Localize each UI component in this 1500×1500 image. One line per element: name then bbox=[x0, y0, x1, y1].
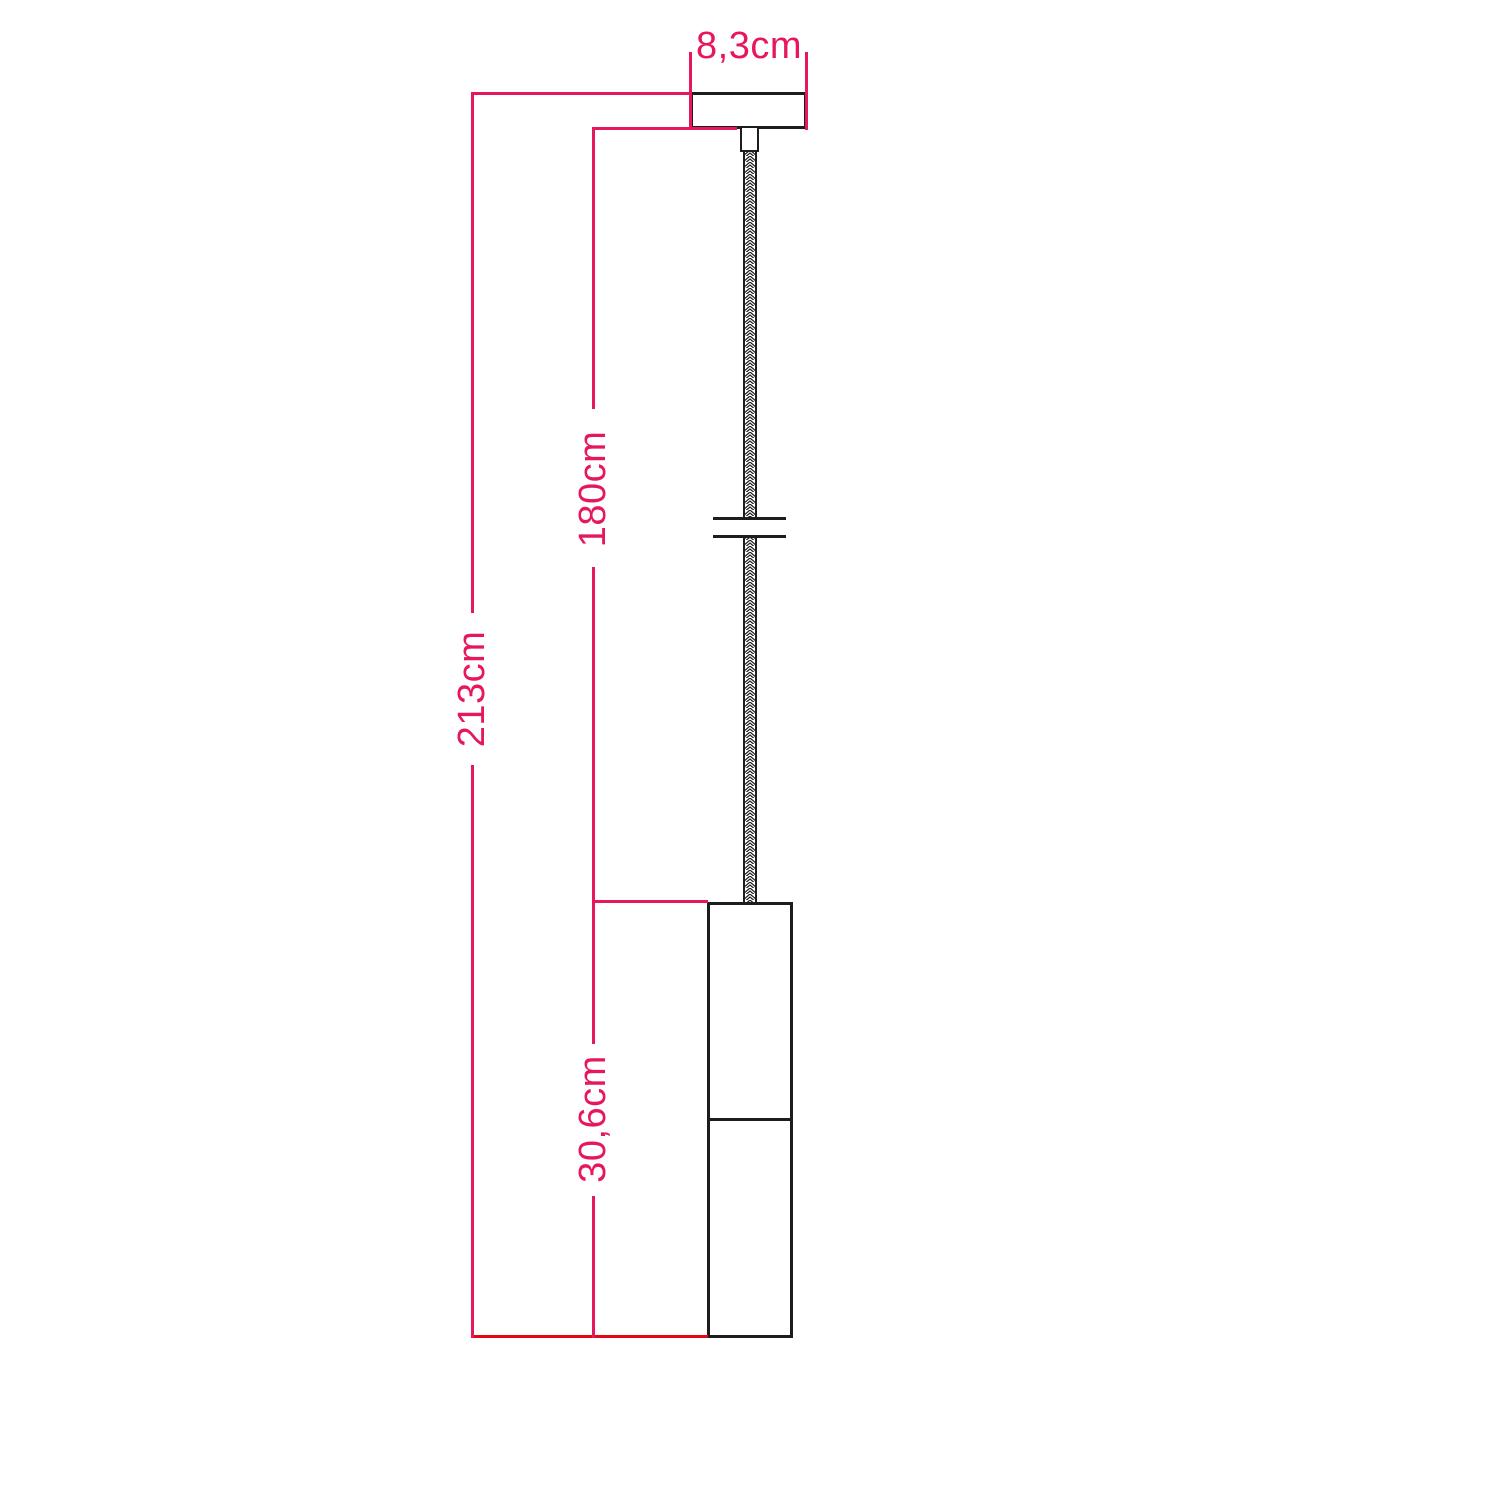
dim-cable-length-label: 180cm bbox=[571, 379, 615, 599]
dim-width-label: 8,3cm bbox=[649, 24, 849, 68]
cable-break-line-top bbox=[713, 517, 786, 520]
dim-total-height-line-upper bbox=[471, 92, 474, 613]
cable-break-line-bottom bbox=[713, 535, 786, 538]
dim-cable-length-line-lower bbox=[592, 567, 595, 903]
lamp-body-divider bbox=[710, 1118, 790, 1121]
ceiling-rose bbox=[690, 92, 807, 129]
dim-lamp-height-top-line bbox=[592, 900, 708, 903]
dim-cable-length-top-line bbox=[592, 127, 737, 130]
dim-total-height-label: 213cm bbox=[450, 579, 494, 799]
dim-cable-length-line-upper bbox=[592, 127, 595, 409]
cable-grip bbox=[740, 126, 759, 152]
baseline-reference-line bbox=[471, 1335, 708, 1338]
dim-lamp-height-label: 30,6cm bbox=[571, 1009, 615, 1229]
dim-total-height-top-line bbox=[471, 92, 692, 95]
dim-total-height-line-lower bbox=[471, 765, 474, 1338]
technical-drawing-canvas: 8,3cm 213cm 180cm 30,6cm bbox=[0, 0, 1500, 1500]
cable-break-gap bbox=[736, 520, 764, 535]
lamp-body bbox=[707, 902, 793, 1338]
